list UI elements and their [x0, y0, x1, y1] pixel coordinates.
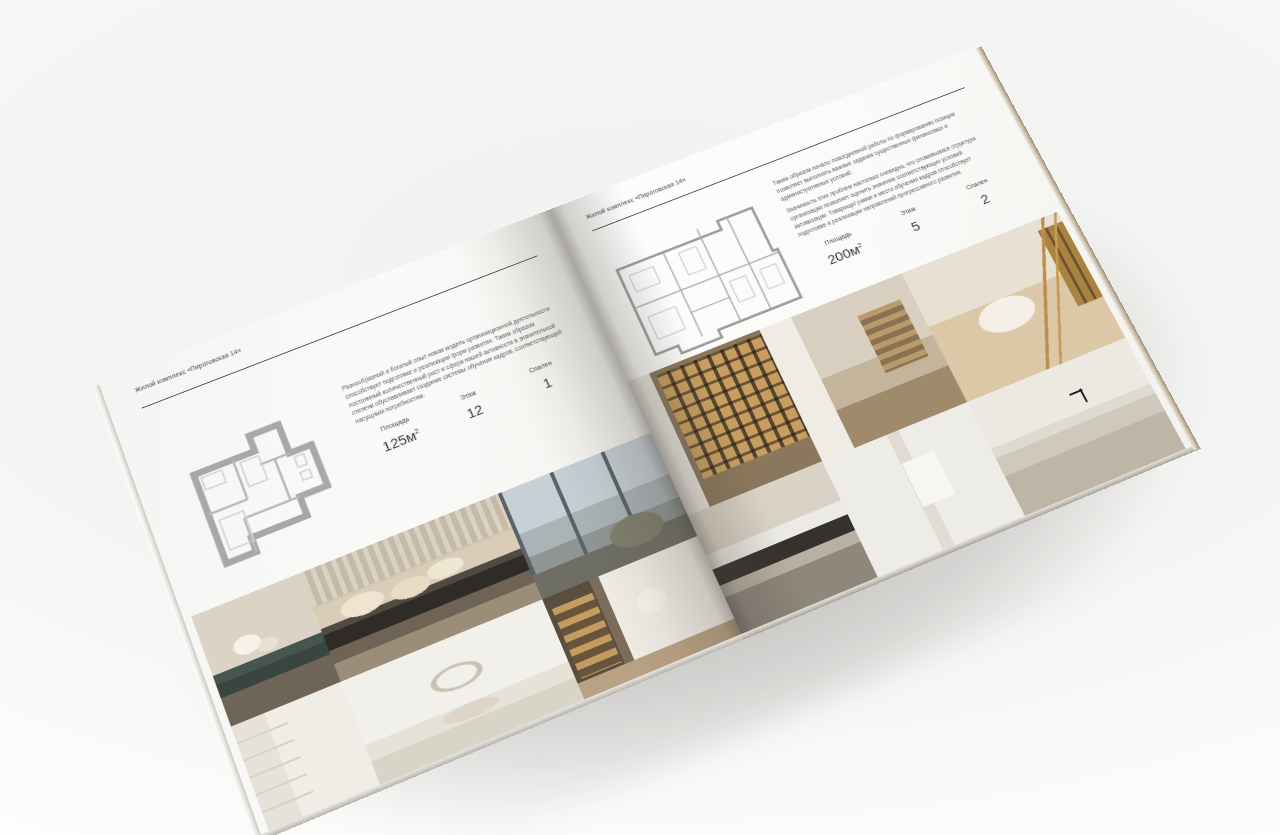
stat-bedrooms-value: 2 [947, 178, 1023, 218]
page-header: Жилой комплекс «Пироговская 14» [134, 346, 242, 392]
brochure-mockup-scene: Жилой комплекс «Пироговская 14» [0, 0, 1280, 835]
